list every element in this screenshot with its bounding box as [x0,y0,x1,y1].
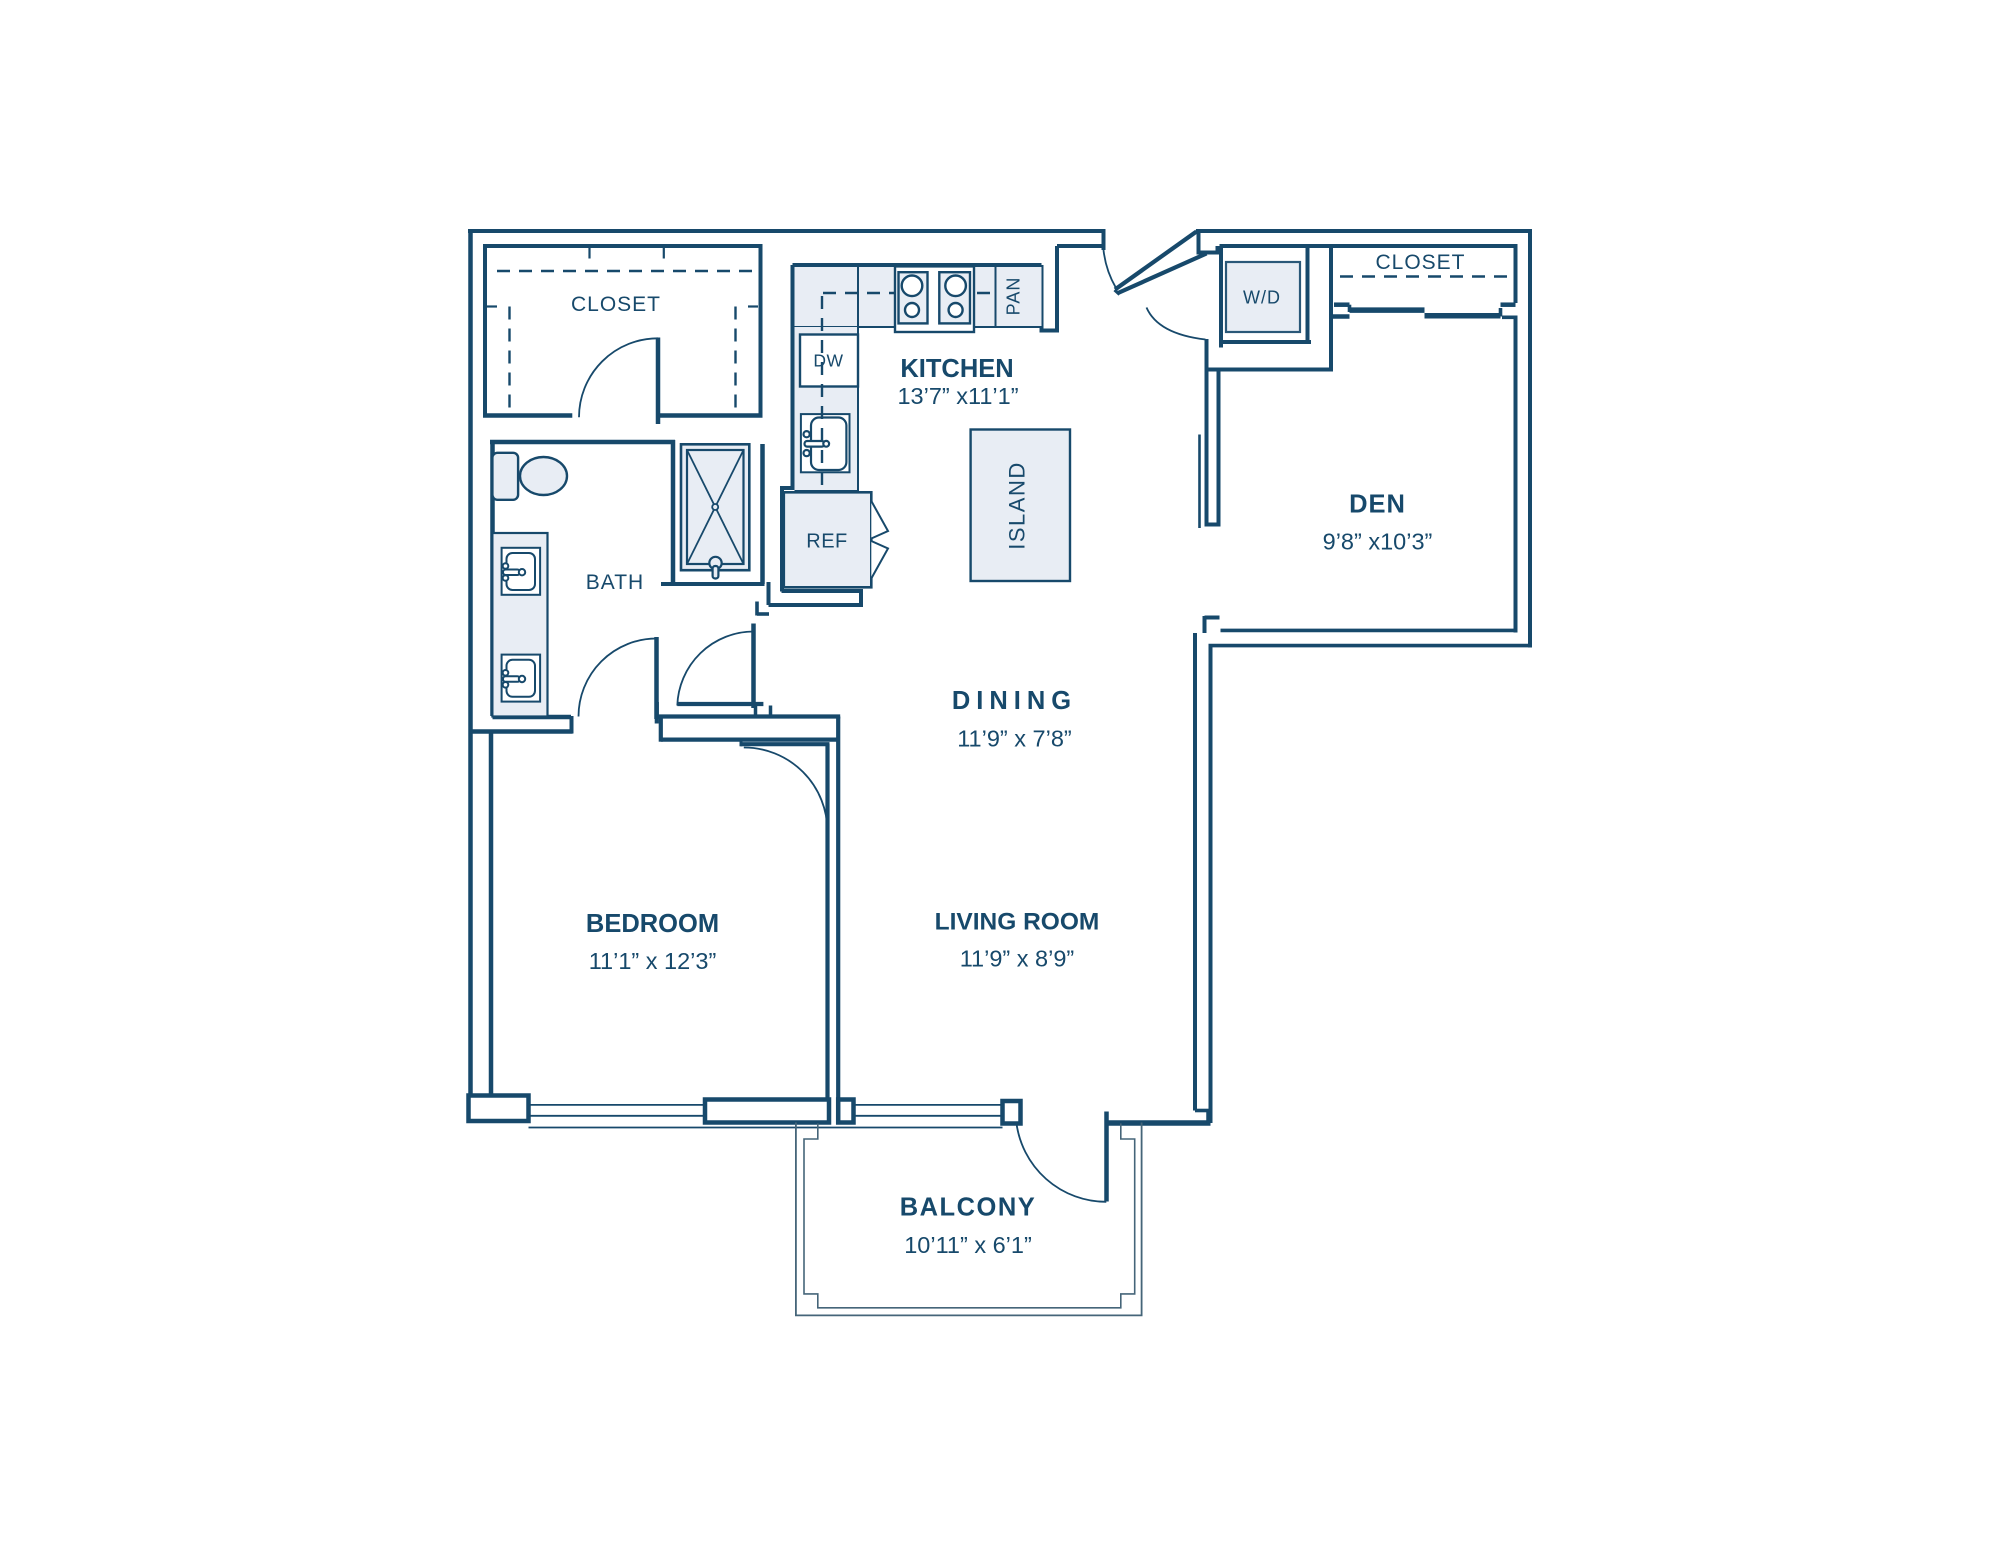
svg-text:PAN: PAN [1004,277,1024,316]
svg-text:ISLAND: ISLAND [1005,461,1030,549]
svg-text:13’7” x11’1”: 13’7” x11’1” [897,383,1018,409]
svg-text:11’9” x 8’9”: 11’9” x 8’9” [960,946,1075,972]
svg-text:CLOSET: CLOSET [571,293,661,316]
svg-text:BALCONY: BALCONY [900,1194,1037,1222]
svg-text:11’1” x 12’3”: 11’1” x 12’3” [589,948,717,974]
svg-text:DW: DW [813,351,843,371]
svg-text:DINING: DINING [952,687,1077,715]
svg-text:REF: REF [806,531,848,553]
svg-text:W/D: W/D [1243,288,1281,308]
svg-text:11’9” x 7’8”: 11’9” x 7’8” [957,726,1072,752]
svg-text:BATH: BATH [586,571,644,594]
svg-text:10’11” x 6’1”: 10’11” x 6’1” [904,1232,1032,1258]
svg-text:DEN: DEN [1349,491,1406,519]
svg-text:9’8” x10’3”: 9’8” x10’3” [1323,529,1433,555]
svg-text:CLOSET: CLOSET [1375,251,1465,274]
svg-text:KITCHEN: KITCHEN [900,355,1013,383]
svg-text:LIVING ROOM: LIVING ROOM [935,909,1100,936]
svg-text:BEDROOM: BEDROOM [586,910,719,938]
